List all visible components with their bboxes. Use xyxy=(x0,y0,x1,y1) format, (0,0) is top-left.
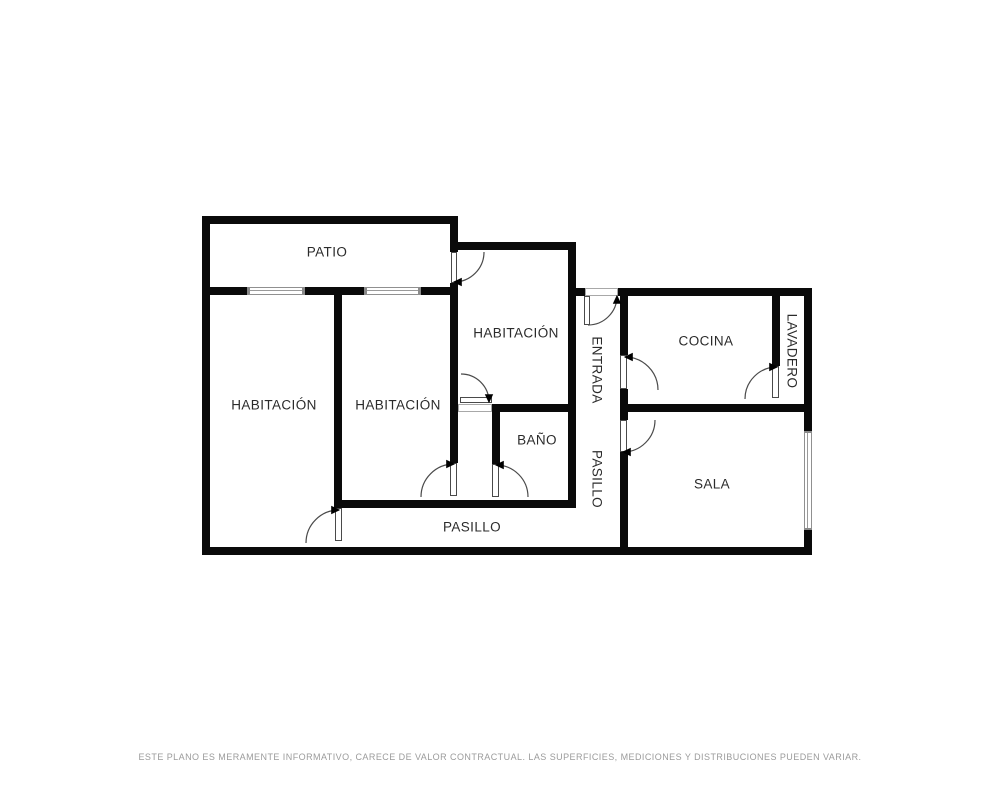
wall-cocina-bottom xyxy=(620,404,812,412)
door-leaf-cocina xyxy=(620,355,627,389)
wall-tophab-bottom xyxy=(492,404,576,412)
room-label-banio: BAÑO xyxy=(517,433,557,448)
door-leaf-tophab xyxy=(460,397,492,403)
threshold-entrance xyxy=(585,288,618,296)
door-leaf-lavadero xyxy=(772,366,779,398)
wall-patio-top xyxy=(202,216,458,224)
wall-left-outer xyxy=(202,216,210,555)
door-leaf-banio xyxy=(492,464,499,497)
wall-patio-bottom-a xyxy=(202,287,248,295)
door-arc-entrance xyxy=(588,296,617,325)
door-leaf-hab-middle xyxy=(450,463,457,496)
window-icon-patio-2 xyxy=(364,287,421,295)
room-label-habitacion-top: HABITACIÓN xyxy=(473,326,559,341)
disclaimer-text: ESTE PLANO ES MERAMENTE INFORMATIVO, CAR… xyxy=(0,752,1000,762)
wall-entry-top-a xyxy=(576,288,585,296)
door-arcs-layer xyxy=(0,0,1000,800)
room-label-lavadero: LAVADERO xyxy=(785,314,800,389)
wall-hab-divider xyxy=(334,295,342,508)
wall-bottom-outer xyxy=(202,547,812,555)
door-arc-cocina xyxy=(625,357,658,390)
door-arc-sala xyxy=(623,420,655,452)
door-arc-banio xyxy=(496,465,528,497)
threshold-tophab xyxy=(458,404,492,412)
room-label-cocina: COCINA xyxy=(679,334,734,349)
wall-lavadero-divider xyxy=(772,296,780,366)
door-arc-patio-tophab xyxy=(454,252,484,282)
door-leaf-patio-tophab xyxy=(451,252,457,283)
room-label-sala: SALA xyxy=(694,477,730,492)
wall-cocina-left-upper xyxy=(620,296,628,355)
wall-entry-top-b xyxy=(618,288,804,296)
window-icon-sala xyxy=(804,431,812,530)
wall-pasillo-top xyxy=(334,500,576,508)
floor-plan: PATIO HABITACIÓN HABITACIÓN HABITACIÓN E… xyxy=(0,0,1000,800)
room-label-entrada: ENTRADA xyxy=(590,336,605,403)
wall-patio-bottom-c xyxy=(421,287,458,295)
door-leaf-sala xyxy=(620,420,627,452)
wall-tophab-right xyxy=(568,242,576,506)
room-label-pasillo-horizontal: PASILLO xyxy=(443,520,501,535)
room-label-habitacion-left: HABITACIÓN xyxy=(231,398,317,413)
room-label-habitacion-middle: HABITACIÓN xyxy=(355,398,441,413)
window-icon-patio-1 xyxy=(247,287,305,295)
door-leaf-entrance xyxy=(584,296,590,325)
door-leaf-hab-left xyxy=(335,508,342,541)
wall-patio-bottom-b xyxy=(305,287,364,295)
wall-banio-left xyxy=(492,412,500,465)
wall-tophab-top xyxy=(450,242,576,250)
wall-mid-divider xyxy=(450,295,458,463)
room-label-patio: PATIO xyxy=(307,245,348,260)
room-label-pasillo-vertical: PASILLO xyxy=(590,450,605,508)
wall-sala-left xyxy=(620,452,628,547)
